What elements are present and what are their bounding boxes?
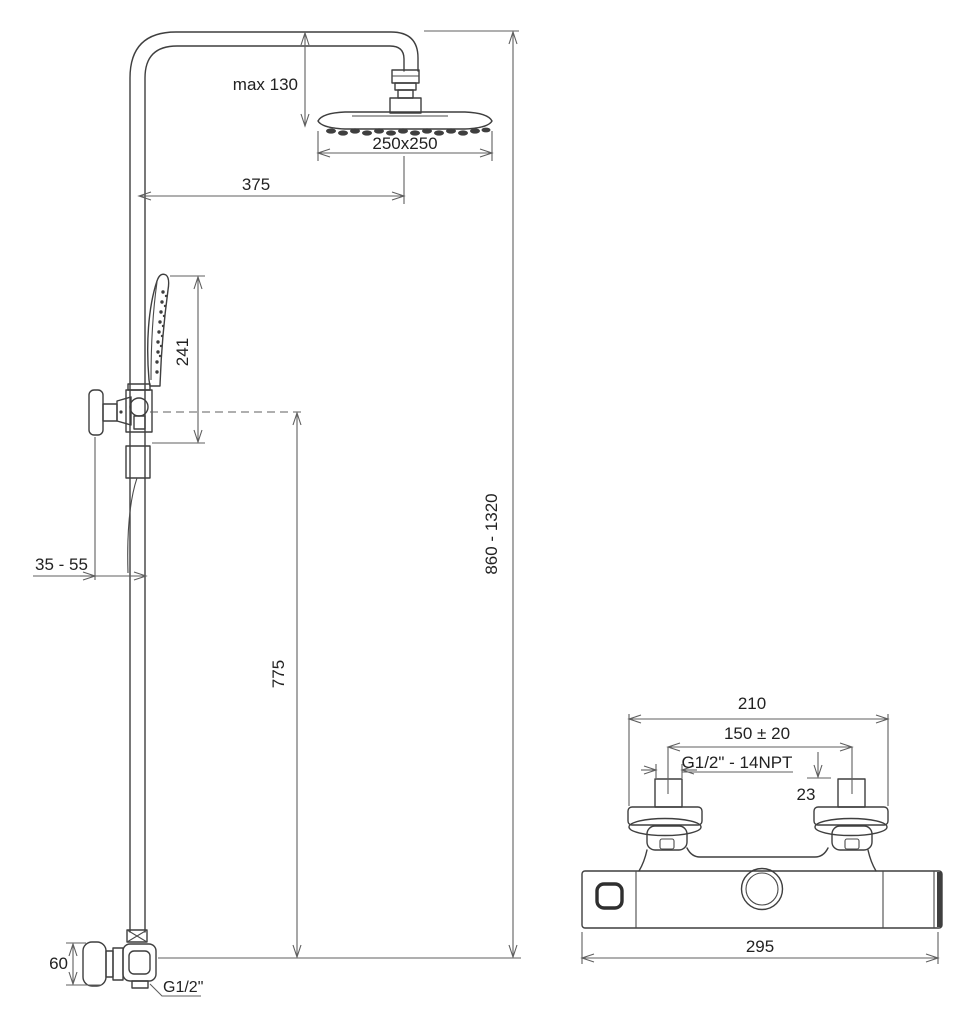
dim-label-max-head-offset: max 130 [233,75,298,94]
dim-max-head-offset: max 130 [233,33,305,126]
dim-label-body-width: 295 [746,937,774,956]
riser-pipe-outer [130,32,418,932]
shower-column-side-view: max 130 250x250 375 241 [33,31,521,996]
dim-wall-distance: 35 - 55 [33,437,146,580]
hand-shower-holder [89,384,152,573]
mixer-right-escutcheon [814,807,888,825]
dim-outlet-height: 775 [269,413,297,957]
mixer-front-view: 210 150 ± 20 G1/2" - 14NPT 23 [582,694,942,964]
dim-label-mixer-overall-width: 210 [738,694,766,713]
wall-bracket-plate [89,390,103,435]
wall-outlet-elbow [83,930,156,988]
mixer-control-ring-inner [746,873,778,905]
label-connection-thread: G1/2" - 14NPT [641,753,793,778]
mixer-control-ring-outer [742,869,783,910]
technical-drawing-page: max 130 250x250 375 241 [0,0,969,1024]
overhead-shower-head [318,112,492,136]
mixer-button [597,884,622,908]
label-outlet-thread-text: G1/2" [163,979,203,996]
dim-arm-reach: 375 [139,156,404,204]
mixer-body [582,869,942,929]
dim-label-elbow-height: 60 [49,954,68,973]
elbow-wall-flange [83,942,106,986]
dim-label-outlet-height: 775 [269,660,288,688]
shower-system-dimension-diagram: max 130 250x250 375 241 [0,0,969,1024]
dim-column-height: 860 - 1320 [424,31,519,957]
dim-thread-length: 23 [797,752,831,804]
mixer-bridge [639,848,876,871]
dim-label-head-size: 250x250 [372,134,437,153]
dim-label-connection-spacing: 150 ± 20 [724,724,790,743]
mixer-left-escutcheon [628,807,702,825]
label-connection-thread-text: G1/2" - 14NPT [682,753,793,772]
dim-hand-shower-length: 241 [152,276,205,443]
dim-label-column-height: 860 - 1320 [482,493,501,574]
dim-label-arm-reach: 375 [242,175,270,194]
overhead-shower-connector [390,70,421,113]
dim-body-width: 295 [582,932,938,964]
riser-pipe-inner [145,46,404,932]
dim-label-hand-shower-length: 241 [173,338,192,366]
label-outlet-thread: G1/2" [150,979,203,996]
dim-label-thread-length: 23 [797,785,816,804]
mixer-end-cap [937,872,942,927]
dim-elbow-height: 60 [49,943,102,985]
dim-label-wall-distance: 35 - 55 [35,555,88,574]
hand-shower [148,274,169,386]
shower-hose [128,478,137,573]
